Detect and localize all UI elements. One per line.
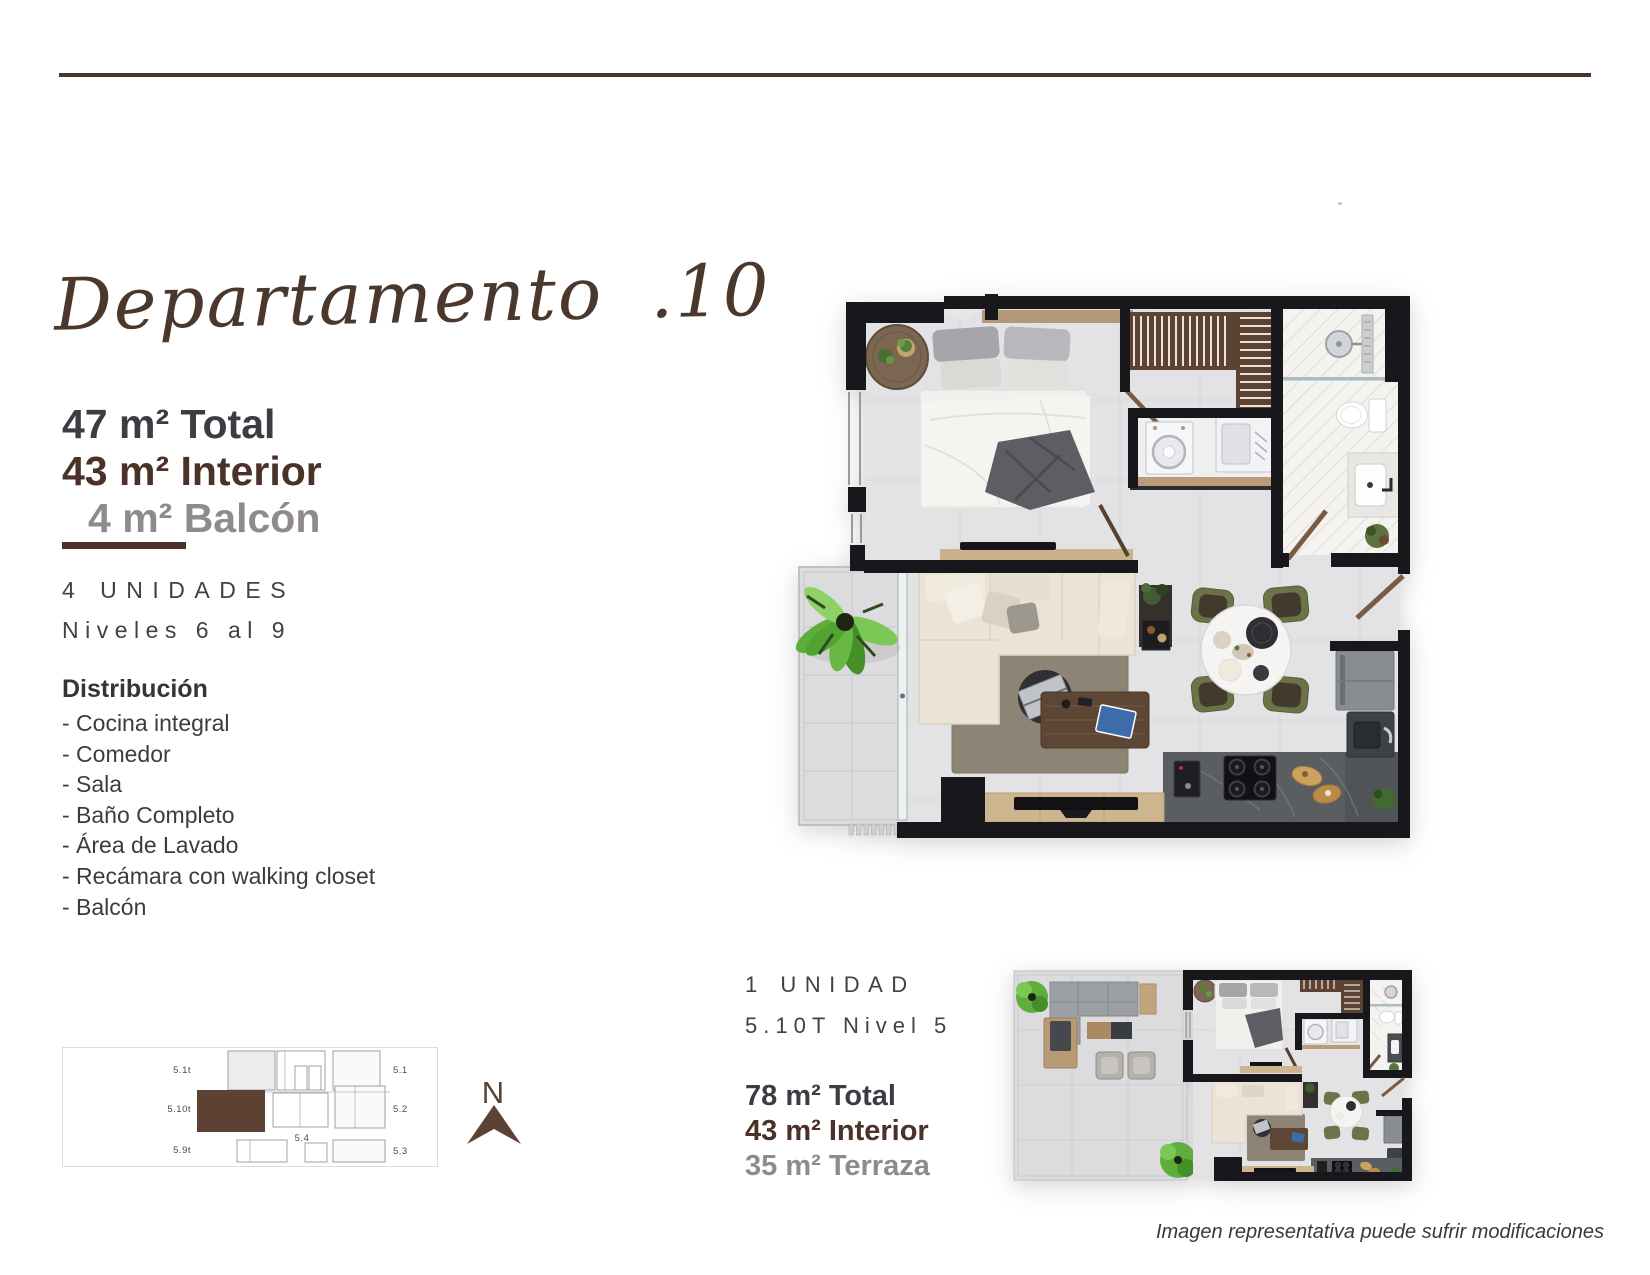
key-label-54: 5.4 [295,1133,310,1144]
list-item: - Cocina integral [62,708,375,739]
brochure-page: Departamento .10 47 m² Total 43 m² Inter… [0,0,1650,1275]
stat-interior-b: 43 m² Interior [745,1114,930,1149]
stat-balcon-a: 4 m² Balcón [62,495,322,542]
key-label-51: 5.1 [393,1065,408,1076]
list-item: - Recámara con walking closet [62,861,375,892]
list-item: - Sala [62,769,375,800]
terraza-area [1014,971,1196,1180]
page-title: Departamento .10 [53,249,695,346]
compass-arrow [467,1105,521,1144]
distribution-list: - Cocina integral - Comedor - Sala - Bañ… [62,708,375,922]
key-label-51t: 5.1t [173,1065,191,1076]
windows [849,392,861,543]
unit-a-stats: 47 m² Total 43 m² Interior 4 m² Balcón [62,401,322,542]
terrace-floor-plan-image [1010,963,1420,1185]
stat-total-a: 47 m² Total [62,401,322,448]
stat-terraza-b: 35 m² Terraza [745,1149,930,1184]
highlighted-unit-510 [197,1090,265,1132]
key-label-52: 5.2 [393,1104,408,1115]
list-item: - Balcón [62,892,375,923]
unit-b-count: 1 UNIDAD [745,972,916,998]
unit-a-levels: Niveles 6 al 9 [62,617,291,644]
list-item: - Área de Lavado [62,830,375,861]
key-label-59t: 5.9t [173,1145,191,1156]
key-plan-image: 5.1t 5.10t 5.9t 5.1 5.2 5.3 5.4 [62,1047,438,1167]
stray-print-mark [1338,202,1342,205]
stat-total-b: 78 m² Total [745,1079,930,1114]
key-label-510t: 5.10t [167,1104,191,1115]
unit-b-stats: 78 m² Total 43 m² Interior 35 m² Terraza [745,1079,930,1184]
list-item: - Baño Completo [62,800,375,831]
main-floor-plan-image [740,282,1416,840]
list-item: - Comedor [62,739,375,770]
unit-b-levels: 5.10T Nivel 5 [745,1013,952,1039]
disclaimer-note: Imagen representativa puede sufrir modif… [1156,1221,1604,1244]
accent-underline [62,542,186,549]
stat-interior-a: 43 m² Interior [62,448,322,495]
dining-set [1190,585,1309,714]
distribution-title: Distribución [62,675,208,704]
north-compass-icon: N [455,1066,535,1151]
top-divider-rule [59,73,1591,77]
unit-a-count: 4 UNIDADES [62,577,295,604]
key-label-53: 5.3 [393,1146,408,1157]
mini-window [1186,1012,1190,1038]
compass-n-label: N [482,1075,504,1110]
